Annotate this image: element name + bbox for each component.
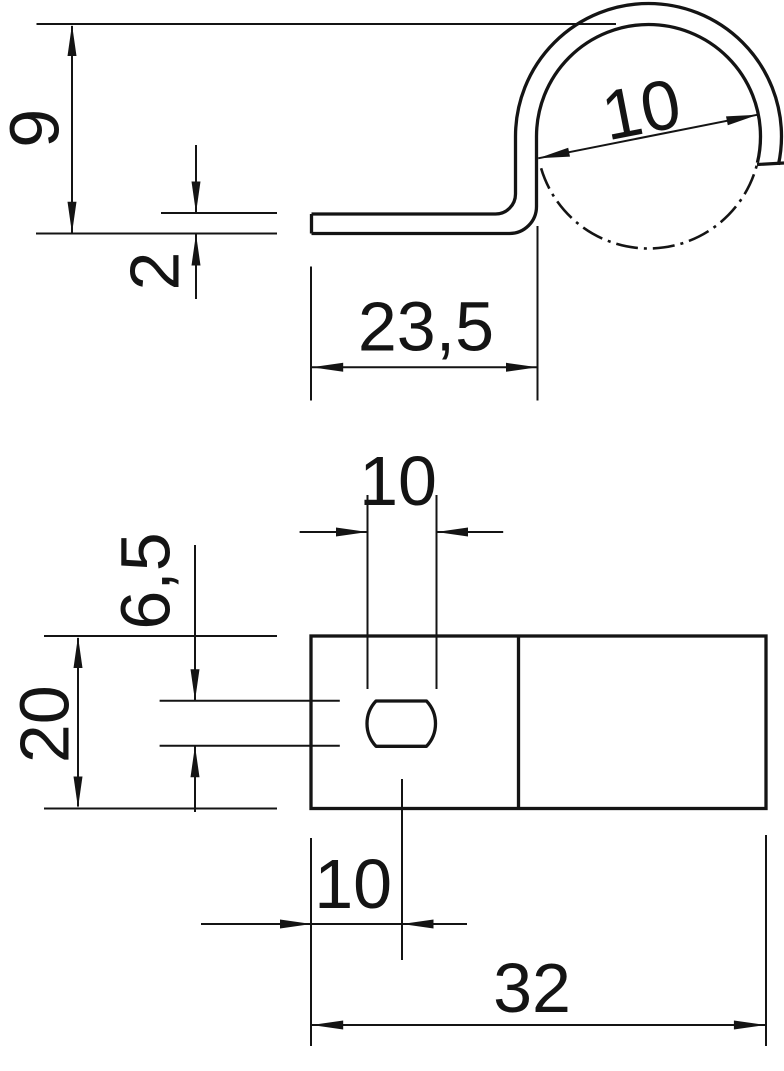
- svg-text:10: 10: [314, 845, 392, 923]
- svg-text:6,5: 6,5: [107, 532, 185, 629]
- svg-text:2: 2: [116, 252, 194, 291]
- svg-text:23,5: 23,5: [358, 288, 494, 366]
- svg-text:10: 10: [359, 442, 437, 520]
- svg-text:10: 10: [596, 64, 687, 155]
- svg-text:32: 32: [493, 949, 571, 1027]
- svg-text:20: 20: [6, 685, 84, 763]
- svg-text:9: 9: [0, 109, 74, 148]
